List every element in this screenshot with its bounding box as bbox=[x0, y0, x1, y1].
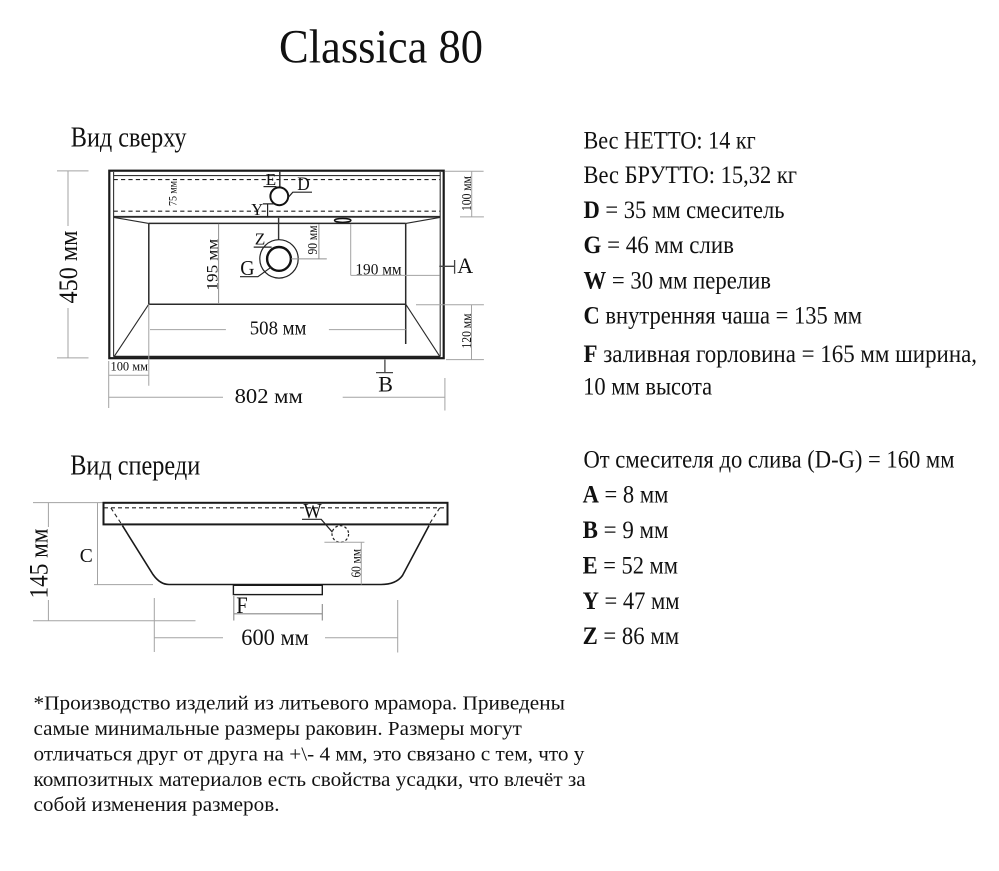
svg-text:60 мм: 60 мм bbox=[349, 549, 364, 578]
svg-text:100 мм: 100 мм bbox=[459, 175, 474, 211]
svg-text:F заливная горловина = 165 мм: F заливная горловина = 165 мм ширина, bbox=[584, 341, 978, 368]
svg-text:C: C bbox=[80, 546, 93, 567]
svg-text:C внутренняя чаша = 135 мм: C внутренняя чаша = 135 мм bbox=[584, 302, 863, 329]
svg-text:B: B bbox=[378, 371, 393, 396]
svg-text:Вид сверху: Вид сверху bbox=[71, 122, 187, 153]
svg-text:Вид спереди: Вид спереди bbox=[70, 450, 200, 481]
svg-text:*Производство изделий из литье: *Производство изделий из литьевого мрамо… bbox=[34, 693, 565, 715]
svg-text:A: A bbox=[457, 253, 473, 278]
svg-text:B = 9 мм: B = 9 мм bbox=[583, 517, 669, 544]
svg-text:W = 30 мм перелив: W = 30 мм перелив bbox=[584, 267, 772, 294]
svg-text:100 мм: 100 мм bbox=[111, 360, 149, 374]
svg-text:A = 8 мм: A = 8 мм bbox=[583, 482, 669, 509]
svg-text:собой изменения размеров.: собой изменения размеров. bbox=[34, 794, 280, 816]
svg-text:Вес НЕТТО: 14 кг: Вес НЕТТО: 14 кг bbox=[584, 127, 756, 154]
svg-text:508 мм: 508 мм bbox=[250, 318, 307, 340]
svg-text:450 мм: 450 мм bbox=[54, 231, 83, 304]
svg-text:120 мм: 120 мм bbox=[459, 313, 474, 349]
svg-text:самые минимальные размеры рако: самые минимальные размеры раковин. Разме… bbox=[34, 718, 523, 740]
svg-text:145 мм: 145 мм bbox=[25, 529, 54, 599]
svg-text:802 мм: 802 мм bbox=[235, 384, 303, 408]
svg-text:Вес БРУТТО: 15,32 кг: Вес БРУТТО: 15,32 кг bbox=[584, 162, 798, 189]
svg-text:90 мм: 90 мм bbox=[305, 225, 320, 254]
svg-text:композитных материалов есть св: композитных материалов есть свойства уса… bbox=[34, 769, 586, 791]
svg-text:Y = 47 мм: Y = 47 мм bbox=[583, 588, 680, 615]
svg-text:600 мм: 600 мм bbox=[241, 625, 309, 651]
svg-text:отличаться друг от друга на +\: отличаться друг от друга на +\- 4 мм, эт… bbox=[34, 743, 585, 765]
svg-text:Z: Z bbox=[255, 230, 266, 249]
svg-text:D = 35 мм смеситель: D = 35 мм смеситель bbox=[584, 197, 785, 224]
svg-text:Z = 86 мм: Z = 86 мм bbox=[583, 623, 680, 650]
svg-text:Y: Y bbox=[251, 200, 263, 219]
svg-text:10 мм высота: 10 мм высота bbox=[583, 373, 712, 400]
svg-text:Classica 80: Classica 80 bbox=[279, 20, 483, 73]
svg-text:195 мм: 195 мм bbox=[205, 239, 222, 291]
svg-text:G = 46 мм слив: G = 46 мм слив bbox=[584, 232, 735, 259]
svg-text:75 мм: 75 мм bbox=[166, 181, 180, 206]
svg-text:190 мм: 190 мм bbox=[355, 262, 401, 279]
svg-text:E = 52 мм: E = 52 мм bbox=[583, 552, 679, 579]
svg-text:От смесителя до слива (D-G) =: От смесителя до слива (D-G) = 160 мм bbox=[584, 447, 955, 474]
